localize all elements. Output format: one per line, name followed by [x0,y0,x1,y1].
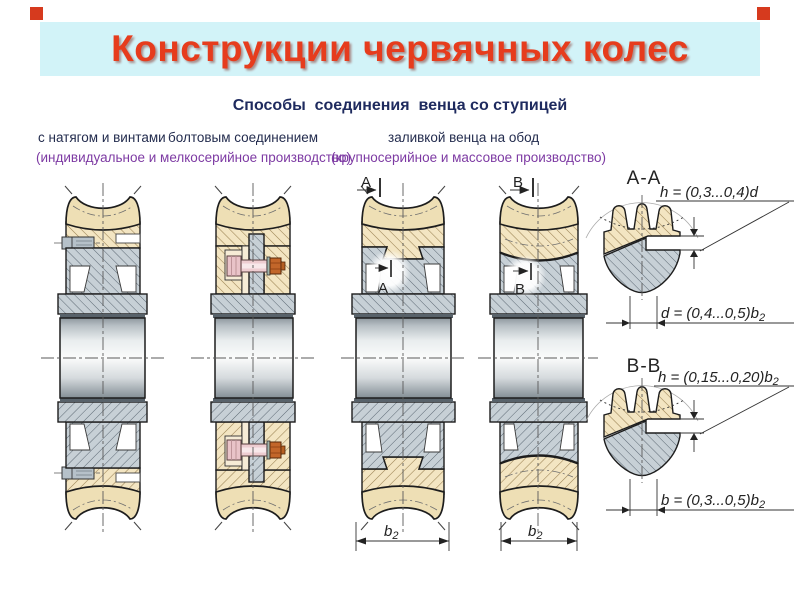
section-mark-b-joint: В [515,281,525,298]
wheel-press-fit-drawing [41,183,165,533]
detail-aa-drawing: А-А h = (0,3...0,4)d d = (0,4...0,5)b2 [586,168,794,329]
section-mark-b-top: В [513,174,523,191]
formula-aa-d: d = (0,4...0,5)b2 [661,305,765,324]
wheel-cast-b-drawing: В В b2 [478,174,598,551]
fixing-screw [54,237,100,249]
dim-b2-label: b2 [528,523,542,542]
wheel-bolted-drawing [191,183,315,533]
detail-aa-title: А-А [627,168,662,189]
slide-root: Конструкции червячных колес Способы соед… [0,0,800,600]
formula-bb-h: h = (0,15...0,20)b2 [658,369,779,388]
technical-drawing-canvas: А А b2 [0,0,800,600]
wheel-cast-a-drawing: А А b2 [341,174,465,551]
formula-aa-h: h = (0,3...0,4)d [660,184,759,201]
dim-b2-label: b2 [384,523,398,542]
section-mark-a-joint: А [378,280,388,297]
formula-bb-b: b = (0,3...0,5)b2 [661,492,765,511]
detail-bb-drawing: В-В h = (0,15...0,20)b2 b = (0,3...0,5)b… [586,356,794,516]
detail-bb-title: В-В [627,356,662,377]
section-mark-a-top: А [361,174,371,191]
joint-highlight-circle-a [367,250,411,294]
